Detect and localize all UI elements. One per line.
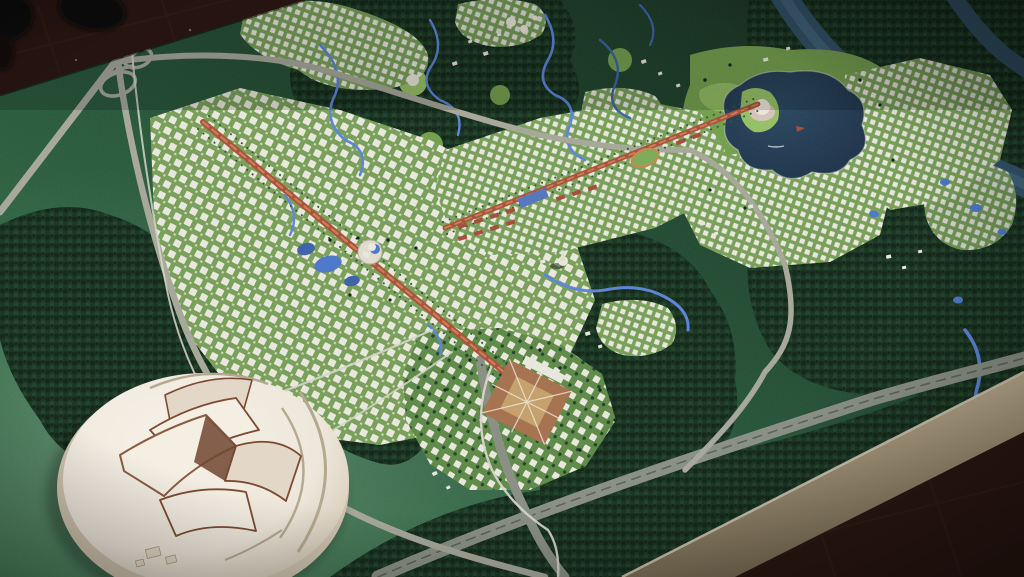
- model-photo-canvas: [0, 0, 1024, 577]
- photo-top-darkening: [0, 0, 1024, 110]
- city-model-photo: [0, 0, 1024, 577]
